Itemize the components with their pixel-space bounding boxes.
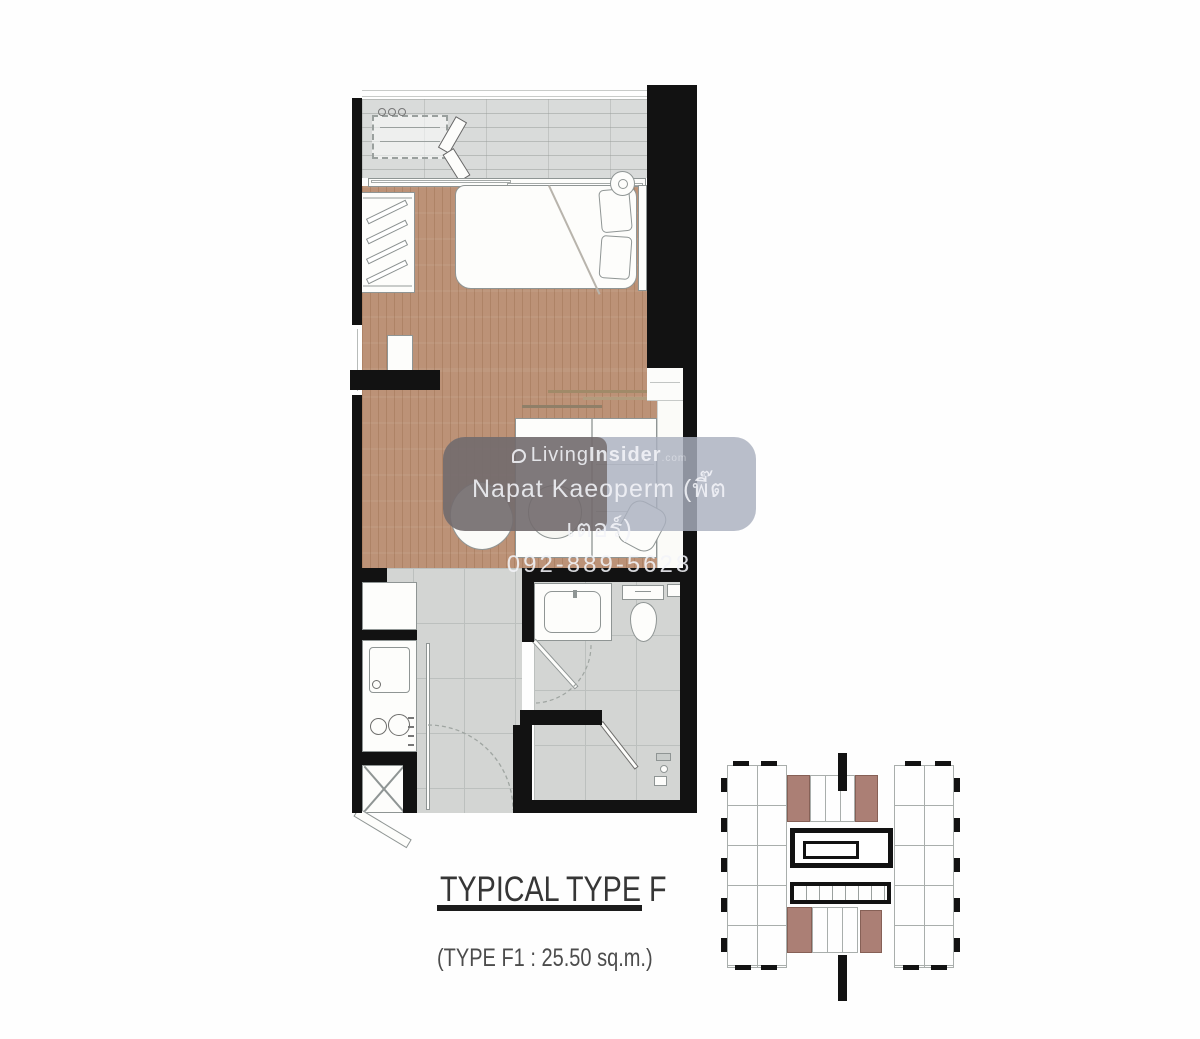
wall-tick [905, 761, 921, 766]
ac-unit-fins [380, 127, 440, 128]
faucet-icon [372, 680, 381, 689]
brand-word-1: Living [531, 444, 589, 466]
wall-kitchen-divider [362, 630, 417, 640]
basin-faucet-icon [573, 590, 577, 598]
plan-title: TYPICAL TYPE F [440, 870, 666, 910]
pillow [599, 235, 633, 280]
balcony-railing [362, 90, 647, 97]
wall-tick [954, 898, 960, 912]
stove-burner-icon [388, 714, 410, 736]
kitchen-sink [369, 647, 410, 693]
keyplan-core-stub [838, 955, 847, 1001]
wall-tick [761, 761, 777, 766]
service-shaft [362, 765, 405, 813]
lamp-inner-dot [618, 179, 628, 189]
hanger-icon [366, 260, 408, 285]
living-window-notch [647, 368, 683, 401]
wall-tick [721, 898, 727, 912]
tv-shelf-line [522, 405, 602, 408]
wall-tick [935, 761, 951, 766]
shower-head-icon [656, 753, 671, 761]
wall-tick [954, 778, 960, 792]
wall-tick [721, 778, 727, 792]
wall-tick [903, 965, 919, 970]
watermark-agent-phone: 092-889-5628 [443, 551, 756, 579]
wall-tick [954, 938, 960, 952]
stove-burner-icon [370, 718, 387, 735]
floorplan-page: LivingInsider.com Napat Kaeoperm (พี๊ตเต… [0, 0, 1200, 1039]
keyplan-core-upper [790, 828, 893, 868]
wall-bedroom-stub [350, 370, 440, 390]
wall-tick [931, 965, 947, 970]
keyplan-bottom-center-units [812, 907, 858, 953]
wall-tick [721, 938, 727, 952]
hall-door-leaf [426, 643, 430, 810]
brand-suffix: .com [662, 453, 688, 464]
toilet-tank [622, 585, 664, 600]
wall-tick [733, 761, 749, 766]
wall-tick [721, 818, 727, 832]
title-underline [437, 905, 642, 911]
wall-shower-partition [520, 710, 602, 725]
keyplan-highlighted-unit [855, 775, 878, 822]
wall-tick [954, 818, 960, 832]
keyplan-highlighted-unit [787, 775, 810, 822]
keyplan-core-lower [790, 882, 891, 904]
keyplan-highlighted-unit [787, 907, 812, 953]
wall-tick [761, 965, 777, 970]
toilet-tank-line [635, 591, 651, 592]
brand-word-2: Insider [589, 444, 662, 466]
wall-bathroom-hall [522, 580, 534, 642]
keyplan-right-wing [894, 765, 954, 968]
wall-tick [721, 858, 727, 872]
entrance-door-leaf [353, 808, 411, 849]
tv-shelf-line [548, 390, 660, 393]
plan-area-subtitle: (TYPE F1 : 25.50 sq.m.) [437, 944, 653, 973]
wall-right-column [647, 85, 697, 370]
ac-condenser-unit [372, 115, 448, 159]
planter-icon [398, 108, 406, 116]
planter-icon [388, 108, 396, 116]
watermark-agent-name: Napat Kaeoperm (พี๊ตเตอร์) [443, 469, 756, 549]
wardrobe [360, 192, 415, 293]
wall-hall-left-stub [352, 568, 387, 582]
sliding-door-panel [371, 180, 511, 183]
stove-knobs [408, 717, 414, 755]
wall-tick [735, 965, 751, 970]
watermark: LivingInsider.com Napat Kaeoperm (พี๊ตเต… [443, 444, 756, 579]
wash-basin [544, 591, 601, 633]
wall-tick [954, 858, 960, 872]
keyplan-left-wing [727, 765, 787, 968]
wall-bottom [513, 800, 697, 813]
living-insider-logo-icon [512, 449, 526, 463]
nightstand [387, 335, 413, 373]
keyplan-core-stub [838, 753, 847, 791]
kitchen-counter [362, 582, 417, 630]
keyplan-highlighted-unit [860, 910, 882, 953]
wall-shaft-right [403, 752, 417, 813]
wall-left [352, 98, 362, 813]
bedside-lamp-icon [610, 171, 635, 196]
keyplan-top-center-units [810, 775, 855, 822]
headboard [638, 185, 647, 291]
planter-icon [378, 108, 386, 116]
shower-mixer-icon [654, 776, 667, 786]
watermark-brand: LivingInsider.com [443, 444, 756, 466]
wardrobe-shelf [363, 285, 412, 287]
wall-bathroom-right [680, 570, 697, 813]
ac-unit-fins [380, 141, 440, 142]
building-key-plan [713, 753, 968, 1008]
shower-control-icon [660, 765, 668, 773]
